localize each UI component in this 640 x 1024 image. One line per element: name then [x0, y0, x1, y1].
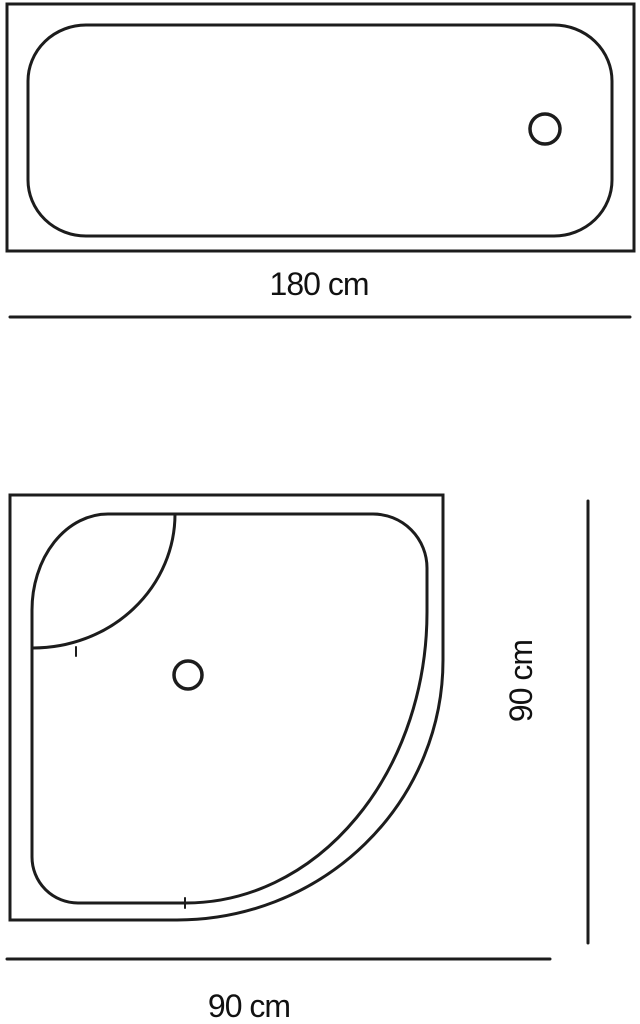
bathtub-inner-rim — [28, 25, 612, 236]
shower-tray-rim — [32, 514, 427, 903]
shower-tray-corner-seat-edge — [33, 514, 175, 648]
tray-height-label: 90 cm — [505, 640, 537, 722]
bathtub-width-label: 180 cm — [270, 268, 369, 300]
technical-drawing-canvas: 180 cm 90 cm 90 cm — [0, 0, 640, 1024]
shower-tray-outer-frame — [10, 495, 443, 920]
tray-width-label: 90 cm — [208, 990, 290, 1022]
bathtub-drain — [530, 114, 560, 144]
drawing-linework — [0, 0, 640, 1024]
bathtub-outer-frame — [7, 4, 634, 251]
shower-tray-drain — [174, 661, 202, 689]
